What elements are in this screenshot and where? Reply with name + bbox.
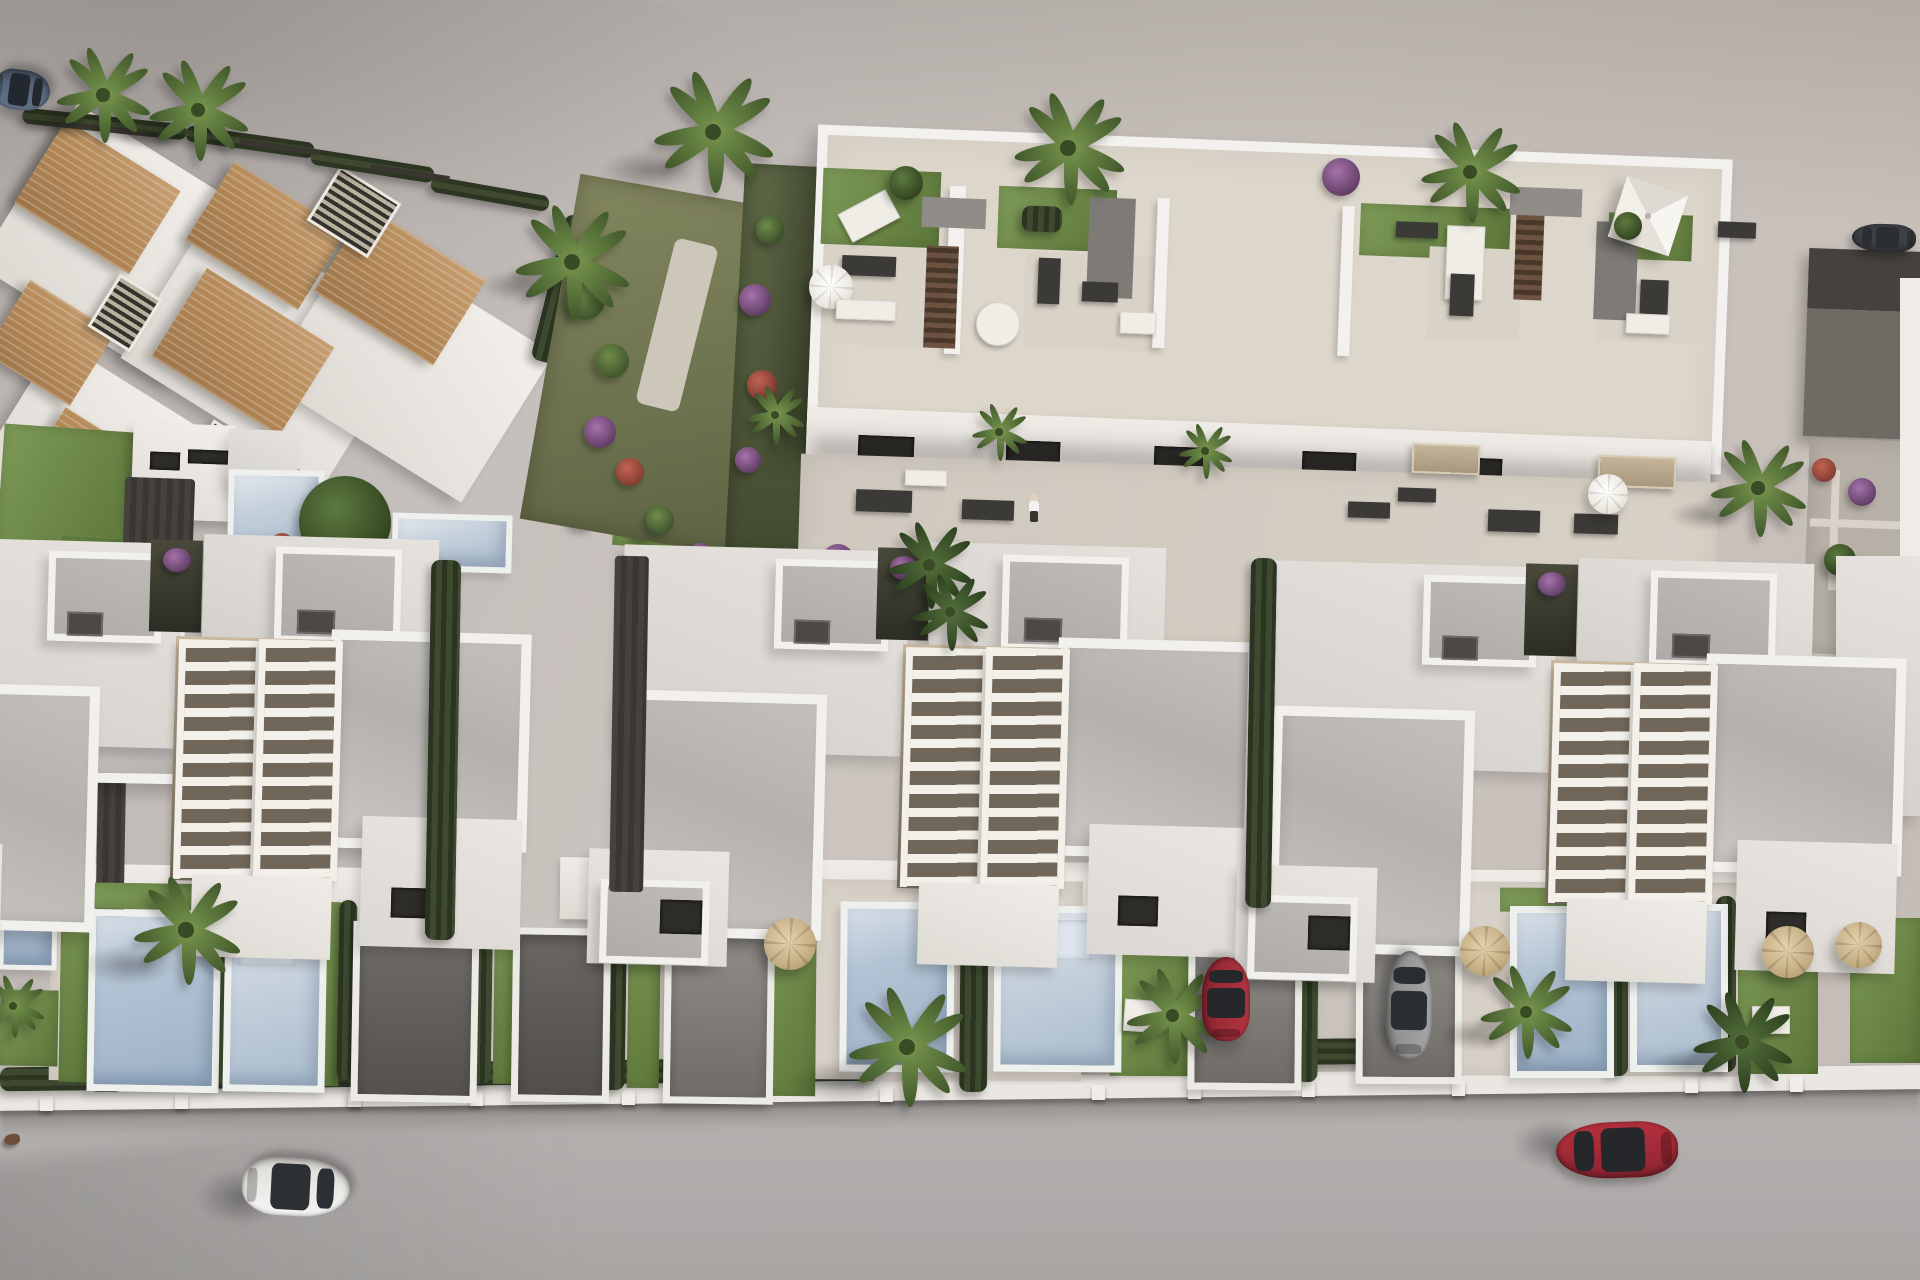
terrace-sideboard bbox=[1398, 487, 1436, 502]
sofa bbox=[1120, 311, 1157, 334]
car-roofw bbox=[1600, 1127, 1645, 1172]
car-rear bbox=[0, 75, 4, 99]
car-roofw bbox=[1391, 991, 1428, 1030]
vg-small-roof-left-g1 bbox=[47, 551, 163, 644]
garden-parasol-tan bbox=[1762, 926, 1814, 978]
palm-crown-center bbox=[1060, 140, 1076, 156]
vg-ac-unit-g2 bbox=[794, 620, 831, 645]
courtyard-bush bbox=[1848, 478, 1876, 506]
car-roofw bbox=[7, 73, 31, 107]
terrace-table bbox=[856, 489, 913, 513]
bougainvillea bbox=[735, 447, 761, 473]
wall-pier bbox=[622, 1090, 635, 1105]
vg-small-roof-left-g2 bbox=[774, 559, 890, 652]
vg-pergola-ladder-left-g2 bbox=[900, 647, 990, 889]
roof-planter bbox=[1022, 205, 1063, 233]
vg-front-block-g2 bbox=[917, 882, 1059, 968]
car-wind bbox=[1393, 967, 1425, 985]
car-roofw bbox=[1875, 227, 1899, 250]
palm-crown-center bbox=[191, 103, 205, 117]
gray-car-parked bbox=[1385, 951, 1433, 1060]
palm-tree bbox=[1480, 966, 1572, 1058]
gap-gravel-center bbox=[609, 556, 649, 893]
garden-bush bbox=[646, 506, 674, 534]
palm-crown-center bbox=[1201, 447, 1209, 455]
vg-pergola-ladder-right-g3 bbox=[1628, 663, 1718, 905]
vg-ac-unit-g2 bbox=[1024, 618, 1063, 643]
palm-crown-center bbox=[96, 88, 109, 101]
palm-tree bbox=[746, 386, 804, 444]
palm-tree bbox=[56, 48, 150, 142]
palm-tree bbox=[1178, 424, 1232, 478]
vg-wing-right-g2 bbox=[1086, 824, 1249, 958]
person-legs bbox=[1030, 511, 1038, 522]
garden-bush bbox=[595, 344, 629, 378]
car-wind bbox=[31, 78, 44, 107]
dining-table bbox=[1449, 274, 1475, 317]
palm-tree bbox=[912, 574, 988, 650]
palm-tree bbox=[653, 72, 773, 192]
palm-tree bbox=[148, 60, 248, 160]
car-wind bbox=[315, 1168, 334, 1209]
gravel-patio bbox=[123, 477, 195, 547]
house-window bbox=[150, 451, 181, 470]
dining-table bbox=[1037, 258, 1061, 305]
palm-tree bbox=[515, 205, 629, 319]
palm-tree bbox=[1420, 122, 1520, 222]
terrace-table bbox=[962, 499, 1015, 521]
roof-panel bbox=[921, 197, 986, 229]
red-car-parked bbox=[1202, 957, 1250, 1041]
garden-parasol-tan bbox=[1460, 926, 1510, 976]
palm-tree bbox=[132, 876, 240, 984]
roof-panel bbox=[1509, 187, 1582, 218]
palm-crown-center bbox=[1735, 1035, 1749, 1049]
bougainvillea bbox=[739, 284, 771, 316]
palm-tree bbox=[1692, 992, 1792, 1092]
terrace-table bbox=[1488, 509, 1541, 533]
palm-tree bbox=[1012, 92, 1124, 204]
vg-pergola-ladder-right-g2 bbox=[980, 647, 1070, 889]
sofa bbox=[836, 299, 897, 321]
car-wind bbox=[1861, 227, 1872, 247]
vg-pergola-ladder-right-g1 bbox=[253, 639, 343, 881]
wall-pier bbox=[1092, 1085, 1105, 1100]
wall-pier bbox=[40, 1096, 53, 1111]
terrace-loungers bbox=[1348, 501, 1390, 518]
vg-door-g3 bbox=[1308, 915, 1351, 950]
vg-notch-bush-g1 bbox=[163, 548, 191, 572]
vg-pergola-ladder-left-g3 bbox=[1548, 663, 1638, 905]
vg-door-g2 bbox=[1118, 895, 1159, 926]
car-roofw bbox=[1207, 988, 1244, 1018]
garden-parasol-tan bbox=[1836, 922, 1882, 968]
vg-ac-unit-g3 bbox=[1442, 636, 1479, 661]
vg-notch-bush-g3 bbox=[1538, 572, 1566, 596]
stair-shaft bbox=[923, 245, 959, 348]
palm-crown-center bbox=[1463, 165, 1477, 179]
sofa bbox=[1626, 313, 1671, 335]
vg-front-block-g3 bbox=[1565, 898, 1707, 984]
terrace-bench bbox=[905, 469, 947, 486]
sun-lounger bbox=[1396, 221, 1439, 239]
palm-tree bbox=[971, 404, 1027, 460]
palm-crown-center bbox=[923, 559, 935, 571]
stone-pergola bbox=[1411, 443, 1480, 475]
house-window bbox=[188, 449, 230, 464]
palm-tree bbox=[0, 975, 44, 1037]
vg-small-roof-left-g3 bbox=[1422, 575, 1538, 668]
aerial-render-scene: Aerial 3D architectural rendering of a w… bbox=[0, 0, 1920, 1280]
car-rear bbox=[1907, 231, 1913, 247]
vg-ac-unit-g3 bbox=[1672, 634, 1711, 659]
vg-pergola-ladder-left-g1 bbox=[173, 639, 263, 881]
garden-bush bbox=[616, 458, 644, 486]
terrace-parasol bbox=[1588, 474, 1628, 514]
garden-parasol-tan bbox=[764, 918, 816, 970]
car-roofw bbox=[270, 1163, 311, 1210]
person-on-terrace bbox=[1028, 494, 1041, 524]
car-rear bbox=[1395, 1044, 1422, 1054]
vg-ac-unit-g1 bbox=[297, 610, 336, 635]
roof-tree bbox=[1614, 212, 1642, 240]
sun-lounger bbox=[1718, 221, 1757, 238]
round-daybed bbox=[976, 302, 1020, 346]
dining-table bbox=[842, 255, 897, 277]
purple-tree bbox=[1322, 158, 1360, 196]
palm-tree bbox=[1710, 440, 1806, 536]
car-rear bbox=[247, 1168, 258, 1202]
vg-door-g2 bbox=[660, 899, 703, 934]
car-rear bbox=[1660, 1132, 1672, 1165]
palm-crown-center bbox=[771, 411, 779, 419]
courtyard-bush bbox=[1812, 458, 1836, 482]
palm-crown-center bbox=[1751, 481, 1764, 494]
palm-crown-center bbox=[995, 428, 1003, 436]
vg-ac-unit-g1 bbox=[67, 612, 104, 637]
dining-table bbox=[1082, 281, 1119, 302]
roof-tree bbox=[889, 166, 923, 200]
wall-pier bbox=[1302, 1082, 1315, 1097]
palm-crown-center bbox=[564, 254, 580, 270]
vg-gray-roof-left-g1 bbox=[0, 681, 100, 932]
car-wind bbox=[1574, 1131, 1595, 1171]
terrace-table bbox=[1574, 513, 1619, 534]
car-wind bbox=[1209, 970, 1243, 983]
car-rear bbox=[1212, 1029, 1240, 1037]
palm-tree bbox=[848, 988, 966, 1106]
palm-crown-center bbox=[178, 922, 193, 937]
garden-bush bbox=[756, 216, 784, 244]
garden-bush bbox=[584, 416, 616, 448]
wall-pier bbox=[175, 1094, 188, 1109]
